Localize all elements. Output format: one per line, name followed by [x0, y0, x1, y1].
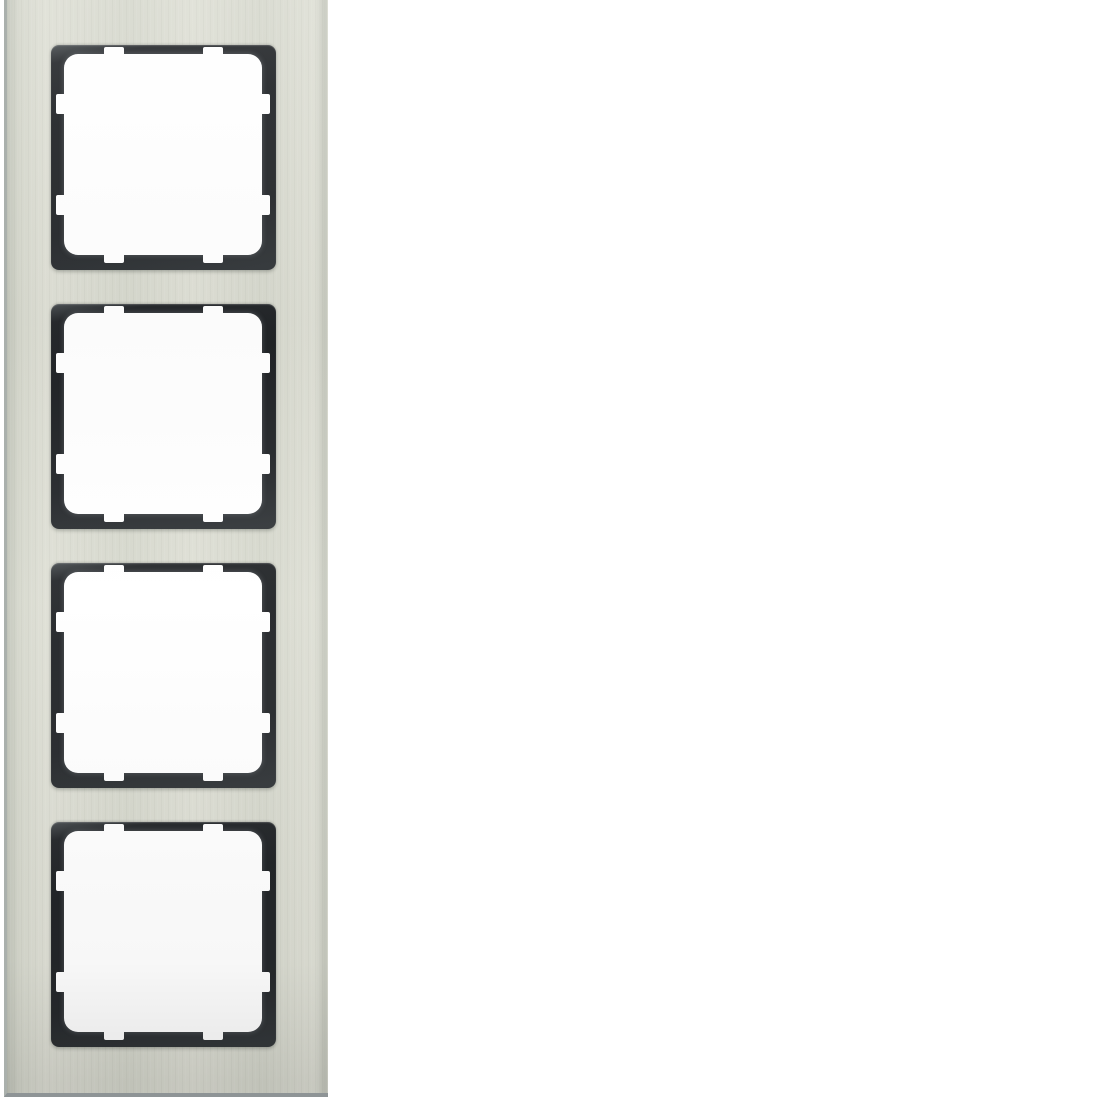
mounting-tab [259, 871, 270, 891]
mounting-tab [104, 252, 124, 263]
window-insert-frame-3 [51, 563, 276, 788]
mounting-tab [104, 306, 124, 317]
mounting-tab [259, 713, 270, 733]
mounting-tab [259, 353, 270, 373]
mounting-tab [203, 1029, 223, 1040]
mounting-tab [56, 195, 67, 215]
window-opening [64, 313, 262, 514]
mounting-tab [104, 565, 124, 576]
mounting-tab [104, 511, 124, 522]
mounting-tab [259, 195, 270, 215]
mounting-tab [56, 94, 67, 114]
window-opening [64, 572, 262, 773]
cover-frame-plate [4, 0, 328, 1097]
product-photo [0, 0, 1100, 1100]
mounting-tab [56, 871, 67, 891]
mounting-tab [203, 252, 223, 263]
mounting-tab [259, 612, 270, 632]
mounting-tab [259, 94, 270, 114]
window-insert-frame-4 [51, 822, 276, 1047]
mounting-tab [203, 824, 223, 835]
mounting-tab [56, 972, 67, 992]
mounting-tab [56, 612, 67, 632]
window-insert-frame-2 [51, 304, 276, 529]
mounting-tab [104, 1029, 124, 1040]
window-opening [64, 831, 262, 1032]
mounting-tab [104, 770, 124, 781]
window-opening [64, 54, 262, 255]
mounting-tab [56, 713, 67, 733]
mounting-tab [203, 47, 223, 58]
mounting-tab [203, 306, 223, 317]
mounting-tab [104, 47, 124, 58]
window-insert-frame-1 [51, 45, 276, 270]
mounting-tab [56, 454, 67, 474]
mounting-tab [203, 511, 223, 522]
mounting-tab [259, 972, 270, 992]
mounting-tab [203, 565, 223, 576]
mounting-tab [56, 353, 67, 373]
mounting-tab [104, 824, 124, 835]
mounting-tab [259, 454, 270, 474]
mounting-tab [203, 770, 223, 781]
